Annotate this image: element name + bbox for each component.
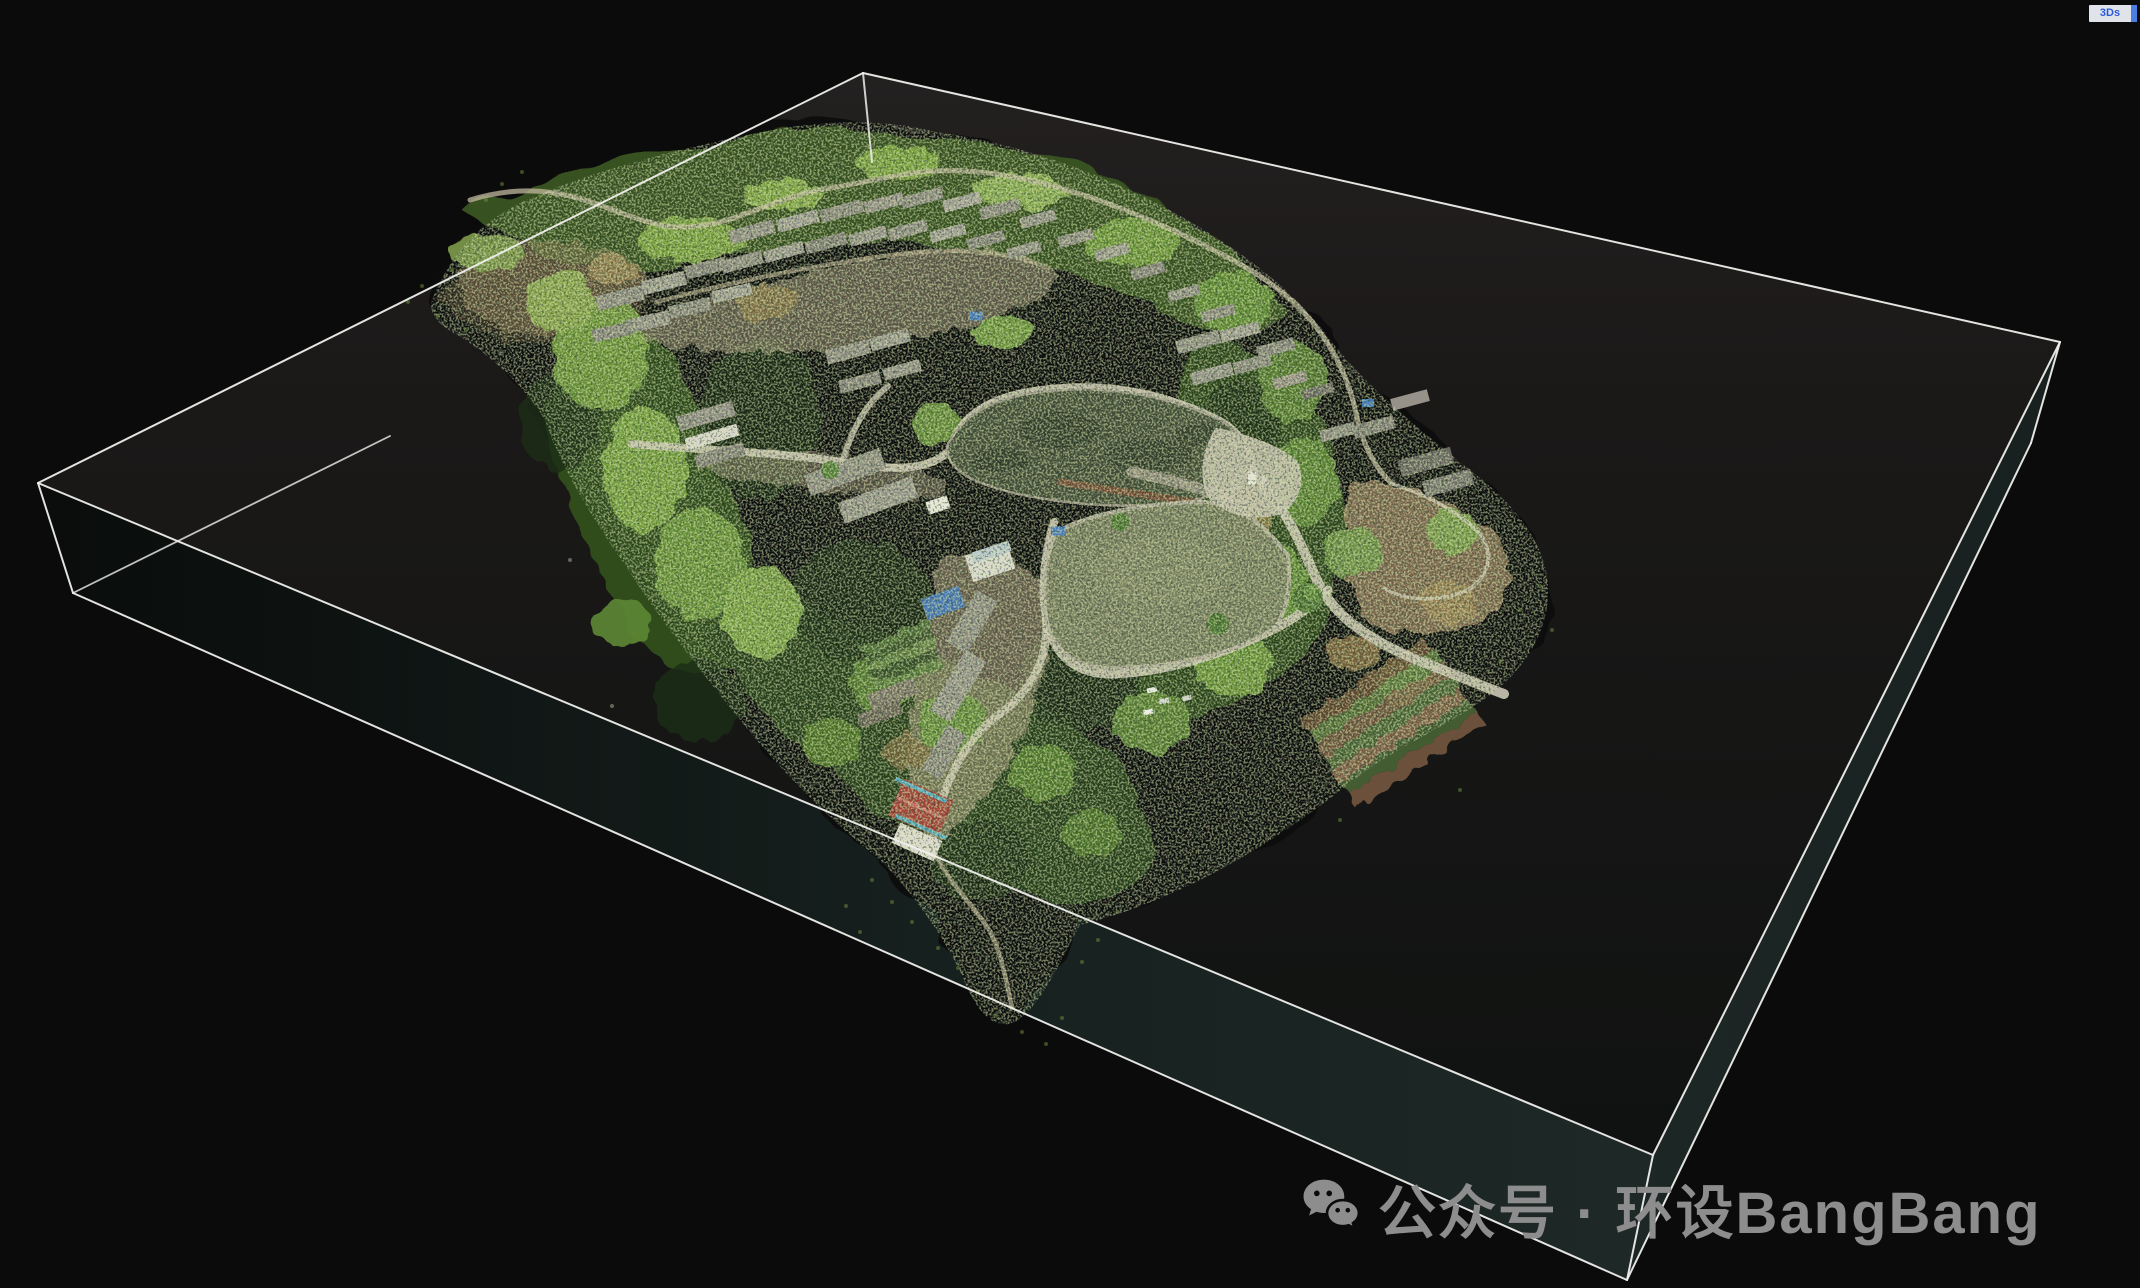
- 3ds-mode-chip[interactable]: 3Ds: [2089, 5, 2137, 22]
- 3ds-mode-label[interactable]: 3Ds: [2089, 5, 2131, 22]
- wechat-icon: [1300, 1177, 1362, 1239]
- scene-layers: [38, 73, 2060, 1280]
- point-cloud-scene: [0, 0, 2140, 1288]
- watermark-text: 公众号 · 环设BangBang: [1378, 1166, 2042, 1250]
- point-cloud-viewport[interactable]: 3Ds 公众号 · 环设BangBang: [0, 0, 2140, 1288]
- 3ds-mode-scrollbar[interactable]: [2131, 5, 2137, 22]
- watermark: 公众号 · 环设BangBang: [1300, 1166, 2042, 1250]
